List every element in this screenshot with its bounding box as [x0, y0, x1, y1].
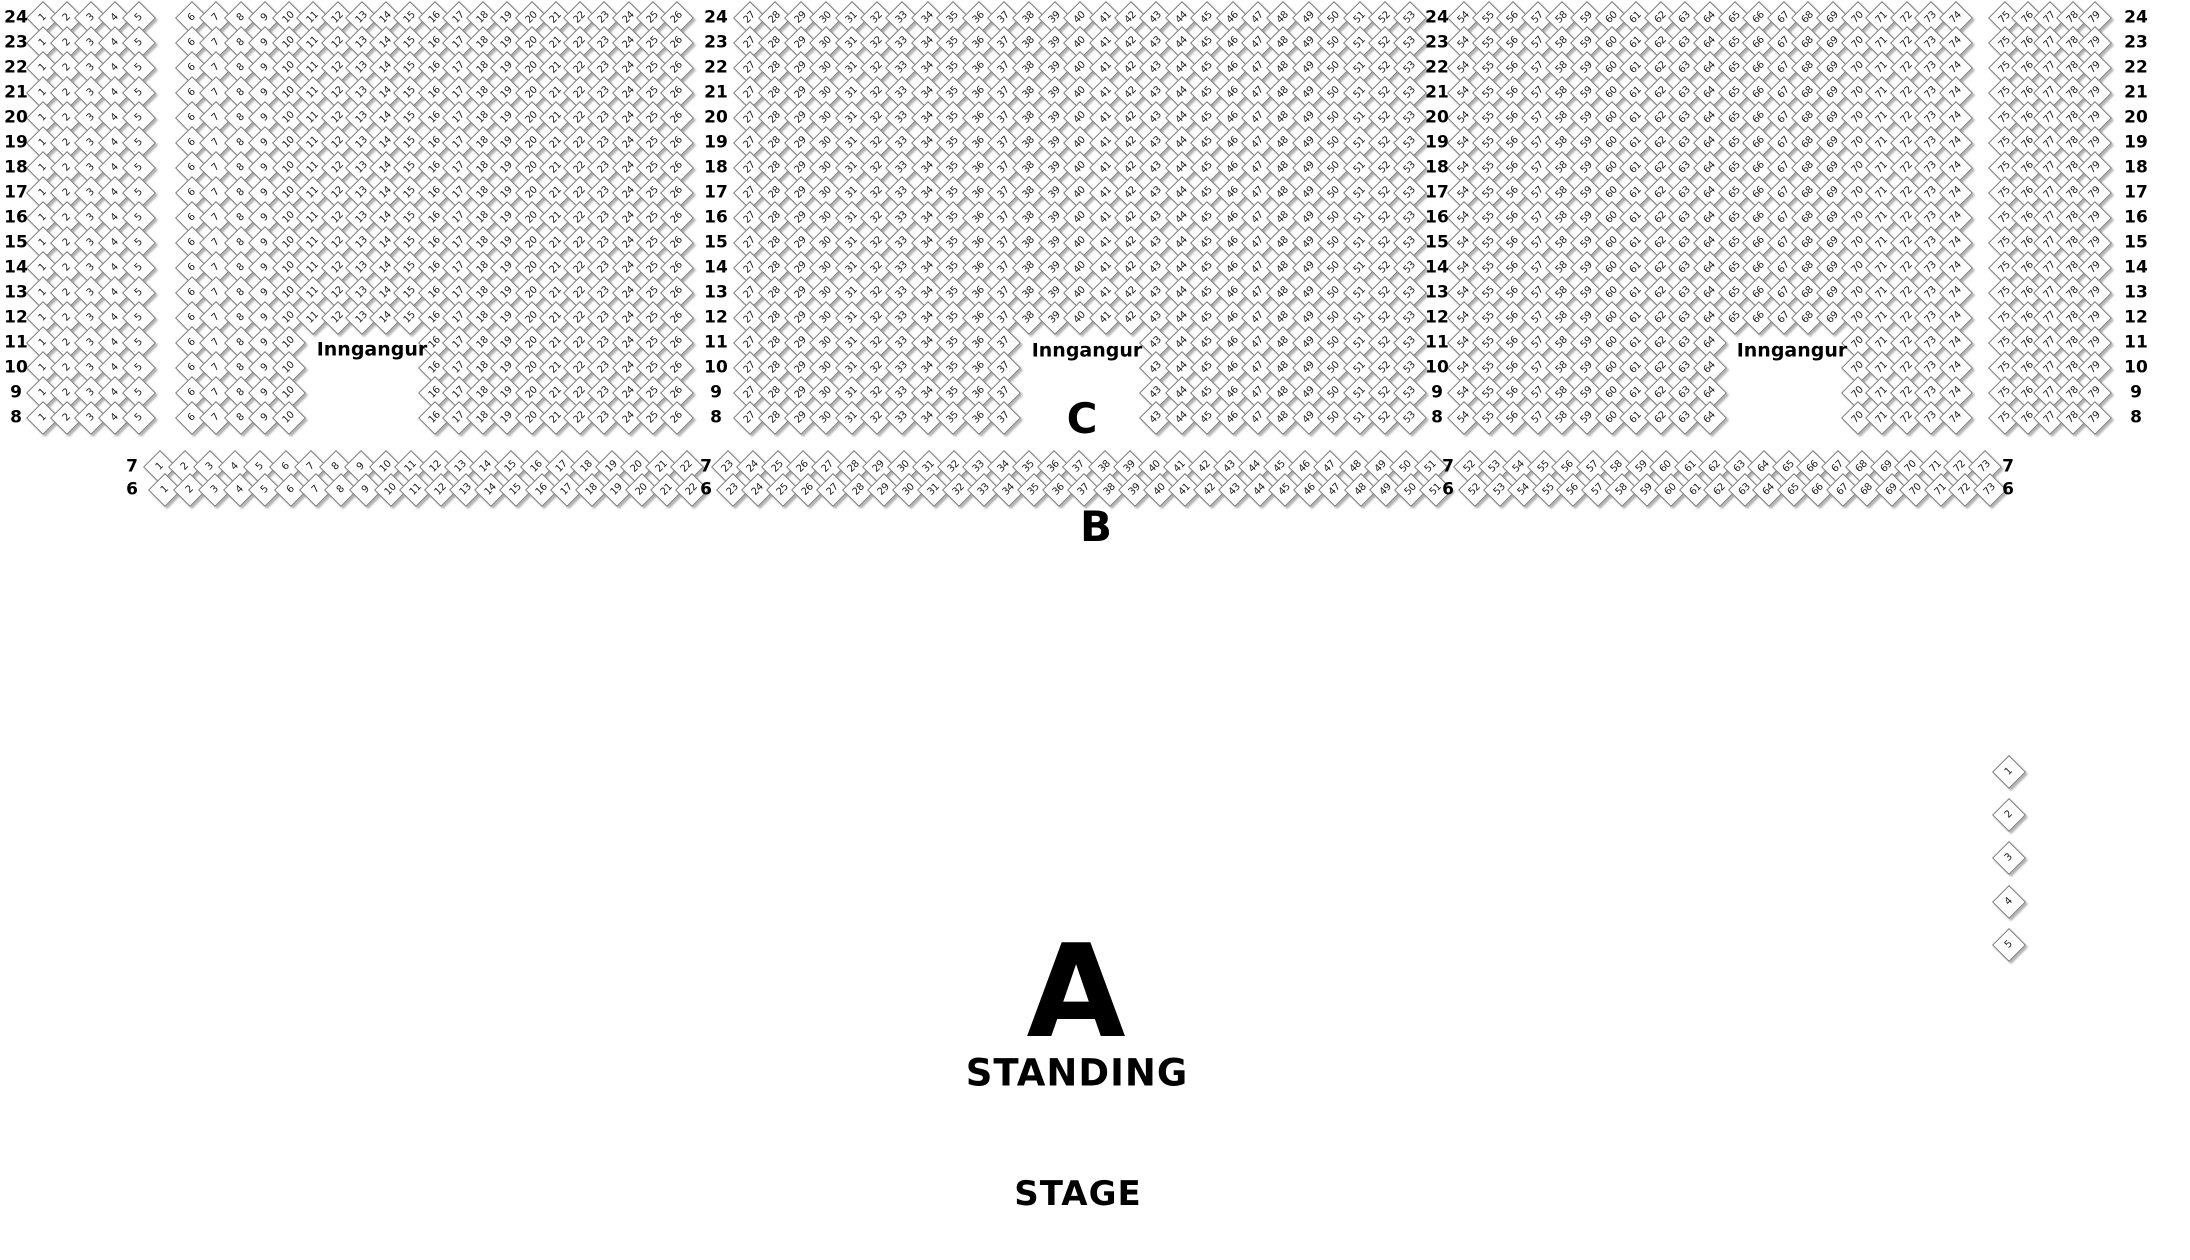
- seat-number: 35: [945, 385, 960, 400]
- row-label: 7: [1442, 459, 1454, 476]
- seat-number: 20: [524, 285, 539, 300]
- seat-number: 53: [1403, 310, 1418, 325]
- seat-number: 61: [1628, 110, 1643, 125]
- seat-number: 73: [1924, 35, 1939, 50]
- seat-number: 2: [61, 262, 72, 273]
- seat-number: 73: [1924, 360, 1939, 375]
- seat-number: 14: [378, 235, 393, 250]
- seat-number: 62: [1653, 85, 1668, 100]
- row-label: 19: [4, 135, 28, 152]
- seat-number: 63: [1678, 285, 1693, 300]
- seat-number: 18: [475, 260, 490, 275]
- seat-number: 38: [1022, 135, 1037, 150]
- seat-number: 58: [1555, 235, 1570, 250]
- row-label: 8: [710, 410, 722, 427]
- seat-number: 67: [1776, 260, 1791, 275]
- seat-number: 25: [645, 335, 660, 350]
- seat-number: 5: [133, 12, 144, 23]
- seat-number: 32: [869, 185, 884, 200]
- seat-number: 63: [1678, 260, 1693, 275]
- seat-number: 51: [1352, 360, 1367, 375]
- seat-number: 7: [211, 387, 222, 398]
- seat-number: 61: [1628, 35, 1643, 50]
- seat-number: 22: [572, 35, 587, 50]
- seat-number: 41: [1098, 160, 1113, 175]
- seat-number: 43: [1149, 335, 1164, 350]
- seat-number: 43: [1149, 160, 1164, 175]
- seat-number: 10: [281, 235, 296, 250]
- seat-number: 27: [742, 160, 757, 175]
- seat-number: 54: [1456, 135, 1471, 150]
- seat-number: 10: [281, 385, 296, 400]
- seat-number: 79: [2087, 110, 2102, 125]
- seat[interactable]: 3: [1992, 841, 2026, 875]
- seat-number: 9: [259, 187, 270, 198]
- seat-number: 57: [1590, 482, 1605, 497]
- seat-number: 79: [2087, 210, 2102, 225]
- seat-number: 12: [330, 60, 345, 75]
- seat-number: 14: [484, 482, 499, 497]
- seat[interactable]: 64: [1693, 401, 1727, 435]
- seat-number: 24: [621, 210, 636, 225]
- seat-number: 60: [1604, 410, 1619, 425]
- seat-number: 20: [524, 85, 539, 100]
- seat-number: 69: [1825, 185, 1840, 200]
- seat-number: 50: [1326, 85, 1341, 100]
- seat-number: 24: [621, 235, 636, 250]
- seat-number: 24: [621, 385, 636, 400]
- seat-number: 52: [1377, 260, 1392, 275]
- seat-number: 42: [1123, 310, 1138, 325]
- seat-number: 40: [1072, 60, 1087, 75]
- seat-number: 15: [403, 110, 418, 125]
- seat-number: 50: [1326, 335, 1341, 350]
- seat-number: 5: [133, 87, 144, 98]
- seat-number: 14: [378, 110, 393, 125]
- seat-number: 22: [572, 60, 587, 75]
- seat-number: 37: [996, 185, 1011, 200]
- seat-number: 33: [895, 210, 910, 225]
- seat-number: 74: [1948, 60, 1963, 75]
- seat-number: 5: [133, 337, 144, 348]
- seat-number: 63: [1678, 85, 1693, 100]
- seat[interactable]: 26: [660, 401, 694, 435]
- seat-number: 67: [1776, 285, 1791, 300]
- seat-number: 50: [1326, 285, 1341, 300]
- seat-number: 62: [1653, 260, 1668, 275]
- section-a-letter: A: [1026, 929, 1125, 1057]
- seat-number: 20: [524, 385, 539, 400]
- seat-number: 52: [1377, 335, 1392, 350]
- seat-number: 17: [451, 10, 466, 25]
- seat-number: 58: [1555, 35, 1570, 50]
- seat-number: 71: [1874, 110, 1889, 125]
- seat-number: 31: [844, 10, 859, 25]
- seat-number: 17: [451, 160, 466, 175]
- seat[interactable]: 53: [1393, 401, 1427, 435]
- seat-number: 74: [1948, 110, 1963, 125]
- row-label: 9: [1431, 385, 1443, 402]
- seat-number: 70: [1850, 110, 1865, 125]
- seat-number: 69: [1825, 210, 1840, 225]
- seat-number: 3: [85, 262, 96, 273]
- seat-number: 56: [1505, 410, 1520, 425]
- seat-number: 10: [383, 482, 398, 497]
- seat-number: 44: [1174, 60, 1189, 75]
- seat-number: 34: [920, 60, 935, 75]
- seat-number: 64: [1761, 482, 1776, 497]
- row-label: 22: [704, 60, 728, 77]
- seat-number: 59: [1579, 10, 1594, 25]
- seat-number: 29: [793, 85, 808, 100]
- seat-number: 21: [548, 35, 563, 50]
- seat-number: 10: [281, 360, 296, 375]
- seat-number: 28: [768, 135, 783, 150]
- seat-number: 33: [895, 410, 910, 425]
- seat-number: 3: [85, 62, 96, 73]
- seat-number: 15: [403, 85, 418, 100]
- seat-number: 51: [1352, 335, 1367, 350]
- seat-number: 79: [2087, 235, 2102, 250]
- seat-number: 58: [1555, 160, 1570, 175]
- seat-number: 55: [1481, 135, 1496, 150]
- seat-number: 47: [1250, 135, 1265, 150]
- seat[interactable]: 5: [122, 401, 156, 435]
- seat-number: 35: [945, 110, 960, 125]
- seat-number: 20: [524, 210, 539, 225]
- seat-number: 58: [1555, 260, 1570, 275]
- seat-number: 72: [1899, 385, 1914, 400]
- seat-number: 25: [645, 285, 660, 300]
- seat-number: 13: [354, 135, 369, 150]
- seat-number: 28: [768, 185, 783, 200]
- seat-number: 32: [869, 360, 884, 375]
- seat-number: 54: [1456, 85, 1471, 100]
- seat-number: 15: [403, 260, 418, 275]
- seat-number: 34: [1001, 482, 1016, 497]
- seat-number: 50: [1326, 310, 1341, 325]
- seat-number: 73: [1924, 185, 1939, 200]
- seat-number: 45: [1199, 310, 1214, 325]
- seat-number: 47: [1250, 10, 1265, 25]
- seat-number: 63: [1678, 210, 1693, 225]
- seat-number: 30: [818, 360, 833, 375]
- seat-number: 57: [1530, 35, 1545, 50]
- seat-number: 71: [1874, 10, 1889, 25]
- seat-number: 62: [1653, 185, 1668, 200]
- seat-number: 29: [793, 410, 808, 425]
- seat-number: 28: [768, 85, 783, 100]
- seat-number: 79: [2087, 10, 2102, 25]
- seat-number: 52: [1377, 110, 1392, 125]
- seat-number: 68: [1801, 210, 1816, 225]
- seat-number: 21: [548, 360, 563, 375]
- seat-number: 40: [1072, 210, 1087, 225]
- seat-number: 36: [971, 110, 986, 125]
- seat-number: 13: [354, 85, 369, 100]
- seat-number: 26: [669, 110, 684, 125]
- seat-number: 8: [335, 484, 346, 495]
- seat-number: 53: [1403, 260, 1418, 275]
- entrance-label: Inngangur: [1032, 342, 1143, 361]
- seat-number: 40: [1072, 110, 1087, 125]
- seat-number: 44: [1174, 235, 1189, 250]
- seat-number: 66: [1751, 60, 1766, 75]
- seat-number: 48: [1353, 482, 1368, 497]
- seat-number: 56: [1505, 310, 1520, 325]
- seat-number: 49: [1301, 285, 1316, 300]
- seat-number: 52: [1377, 310, 1392, 325]
- seat-number: 26: [796, 459, 811, 474]
- seat[interactable]: 4: [1992, 885, 2026, 919]
- seat-number: 35: [945, 360, 960, 375]
- seat[interactable]: 79: [2078, 401, 2112, 435]
- seat-number: 29: [793, 160, 808, 175]
- seat-number: 48: [1276, 160, 1291, 175]
- seat-number: 55: [1481, 110, 1496, 125]
- seat-number: 29: [793, 285, 808, 300]
- seat-number: 21: [548, 185, 563, 200]
- seat-number: 34: [996, 459, 1011, 474]
- seat[interactable]: 5: [1992, 928, 2026, 962]
- seat-number: 1: [37, 412, 48, 423]
- row-label: 23: [4, 35, 28, 52]
- seat-number: 43: [1149, 35, 1164, 50]
- seat-number: 45: [1199, 35, 1214, 50]
- seat-number: 22: [572, 185, 587, 200]
- seat-number: 12: [330, 135, 345, 150]
- seat-number: 50: [1326, 210, 1341, 225]
- seat-number: 51: [1352, 310, 1367, 325]
- seat-number: 9: [259, 237, 270, 248]
- seat-number: 60: [1604, 360, 1619, 375]
- seat-number: 7: [211, 362, 222, 373]
- seat[interactable]: 2: [1992, 798, 2026, 832]
- seat-number: 53: [1403, 10, 1418, 25]
- seat-number: 47: [1250, 160, 1265, 175]
- seat-number: 51: [1352, 260, 1367, 275]
- seat-number: 26: [669, 410, 684, 425]
- seat-number: 69: [1825, 260, 1840, 275]
- seat-number: 64: [1702, 235, 1717, 250]
- seat[interactable]: 1: [1992, 755, 2026, 789]
- seat-number: 22: [572, 360, 587, 375]
- seat-number: 58: [1555, 85, 1570, 100]
- seat-number: 3: [85, 287, 96, 298]
- seat-number: 29: [793, 10, 808, 25]
- seat-number: 34: [920, 85, 935, 100]
- seat-number: 13: [354, 235, 369, 250]
- seat-number: 10: [281, 135, 296, 150]
- seat-number: 73: [1924, 385, 1939, 400]
- seat-number: 34: [920, 410, 935, 425]
- seat-number: 56: [1505, 85, 1520, 100]
- seat-number: 9: [259, 62, 270, 73]
- seat-number: 62: [1653, 210, 1668, 225]
- seat-number: 27: [742, 35, 757, 50]
- seat-number: 73: [1924, 10, 1939, 25]
- seat-number: 33: [895, 185, 910, 200]
- seat-number: 16: [427, 60, 442, 75]
- seat-number: 79: [2087, 410, 2102, 425]
- seat-number: 15: [403, 310, 418, 325]
- seat-number: 68: [1801, 260, 1816, 275]
- seat-number: 4: [2003, 896, 2014, 907]
- seat-number: 54: [1511, 459, 1526, 474]
- seat-number: 13: [354, 285, 369, 300]
- seat-number: 17: [451, 60, 466, 75]
- seat-number: 1: [37, 162, 48, 173]
- seat-number: 21: [548, 85, 563, 100]
- entrance-label: Inngangur: [1737, 342, 1848, 361]
- seat-number: 66: [1805, 459, 1820, 474]
- seat-number: 4: [109, 112, 120, 123]
- row-label: 7: [126, 459, 138, 476]
- row-label: 15: [4, 235, 28, 252]
- seat-number: 37: [996, 10, 1011, 25]
- seat-number: 14: [479, 459, 494, 474]
- seat-number: 13: [458, 482, 473, 497]
- seat-number: 24: [621, 110, 636, 125]
- seat[interactable]: 10: [272, 401, 306, 435]
- seat-number: 22: [679, 459, 694, 474]
- seat-number: 4: [109, 62, 120, 73]
- seat-number: 43: [1149, 385, 1164, 400]
- seat-number: 46: [1225, 310, 1240, 325]
- seat-number: 48: [1276, 10, 1291, 25]
- seat-number: 64: [1702, 85, 1717, 100]
- seat-number: 22: [572, 160, 587, 175]
- seat-number: 11: [403, 459, 418, 474]
- seat-number: 11: [306, 10, 321, 25]
- seat-number: 7: [211, 262, 222, 273]
- seat-number: 6: [186, 37, 197, 48]
- seat-number: 24: [621, 335, 636, 350]
- seat-number: 31: [844, 235, 859, 250]
- seat-number: 14: [378, 10, 393, 25]
- seat-number: 68: [1801, 35, 1816, 50]
- seat-number: 70: [1908, 482, 1923, 497]
- seat-number: 68: [1801, 10, 1816, 25]
- seat-number: 58: [1614, 482, 1629, 497]
- seat-number: 34: [920, 360, 935, 375]
- seat-number: 25: [770, 459, 785, 474]
- seat-number: 8: [235, 187, 246, 198]
- seat-number: 71: [1874, 85, 1889, 100]
- seat-number: 13: [354, 160, 369, 175]
- seat-number: 74: [1948, 35, 1963, 50]
- seat-number: 57: [1530, 85, 1545, 100]
- seat-number: 58: [1555, 135, 1570, 150]
- seat-number: 19: [500, 385, 515, 400]
- seat-number: 46: [1225, 185, 1240, 200]
- seat-number: 74: [1948, 235, 1963, 250]
- seat-number: 1: [37, 62, 48, 73]
- seat-number: 66: [1810, 482, 1825, 497]
- seat-number: 29: [793, 260, 808, 275]
- seat-number: 45: [1199, 10, 1214, 25]
- seat-number: 54: [1456, 260, 1471, 275]
- seat-number: 12: [330, 35, 345, 50]
- seat-number: 23: [597, 210, 612, 225]
- seat-number: 35: [945, 10, 960, 25]
- seat-number: 14: [378, 135, 393, 150]
- seat-number: 61: [1628, 285, 1643, 300]
- seat-number: 62: [1653, 160, 1668, 175]
- seat-number: 11: [306, 135, 321, 150]
- seat-number: 18: [475, 160, 490, 175]
- seat[interactable]: 37: [987, 401, 1021, 435]
- seat-number: 22: [572, 210, 587, 225]
- seat-number: 63: [1678, 160, 1693, 175]
- seat-number: 19: [500, 10, 515, 25]
- seat-number: 28: [851, 482, 866, 497]
- seat-number: 48: [1276, 185, 1291, 200]
- seat-number: 28: [768, 260, 783, 275]
- seat-number: 65: [1727, 210, 1742, 225]
- seat-number: 20: [524, 260, 539, 275]
- seat-number: 71: [1874, 60, 1889, 75]
- seat-number: 68: [1801, 160, 1816, 175]
- seat-number: 28: [768, 235, 783, 250]
- seat-number: 41: [1098, 135, 1113, 150]
- seat-number: 47: [1250, 185, 1265, 200]
- seat-number: 26: [669, 160, 684, 175]
- seat-number: 47: [1328, 482, 1343, 497]
- seat-number: 5: [133, 312, 144, 323]
- seat-number: 25: [645, 60, 660, 75]
- row-label: 14: [1425, 260, 1449, 277]
- seat-number: 66: [1751, 110, 1766, 125]
- seat-number: 36: [971, 385, 986, 400]
- seat-number: 13: [453, 459, 468, 474]
- seat-number: 39: [1047, 285, 1062, 300]
- seat-number: 57: [1530, 160, 1545, 175]
- seat-number: 65: [1727, 135, 1742, 150]
- seat-number: 36: [1052, 482, 1067, 497]
- seat-number: 58: [1555, 310, 1570, 325]
- seat-number: 46: [1225, 110, 1240, 125]
- row-label: 24: [4, 10, 28, 27]
- seat-number: 6: [186, 137, 197, 148]
- seat-number: 73: [1924, 285, 1939, 300]
- seat-number: 6: [186, 187, 197, 198]
- seat-number: 73: [1924, 410, 1939, 425]
- seat-number: 74: [1948, 160, 1963, 175]
- seat[interactable]: 74: [1939, 401, 1973, 435]
- seat-number: 8: [235, 62, 246, 73]
- seat-number: 1: [37, 387, 48, 398]
- seat-number: 65: [1786, 482, 1801, 497]
- row-label: 10: [1425, 360, 1449, 377]
- seat-number: 52: [1377, 285, 1392, 300]
- seat-number: 12: [330, 10, 345, 25]
- seat-number: 34: [920, 160, 935, 175]
- seat-number: 57: [1530, 10, 1545, 25]
- seat-number: 62: [1653, 35, 1668, 50]
- seat-number: 72: [1899, 310, 1914, 325]
- seat-number: 39: [1047, 60, 1062, 75]
- seat-number: 67: [1776, 235, 1791, 250]
- seat-number: 21: [548, 135, 563, 150]
- seat-number: 8: [235, 312, 246, 323]
- seat-number: 44: [1174, 10, 1189, 25]
- seat-number: 58: [1609, 459, 1624, 474]
- seat-number: 57: [1530, 335, 1545, 350]
- seat-number: 57: [1530, 310, 1545, 325]
- seat-number: 56: [1505, 185, 1520, 200]
- seat-number: 21: [548, 10, 563, 25]
